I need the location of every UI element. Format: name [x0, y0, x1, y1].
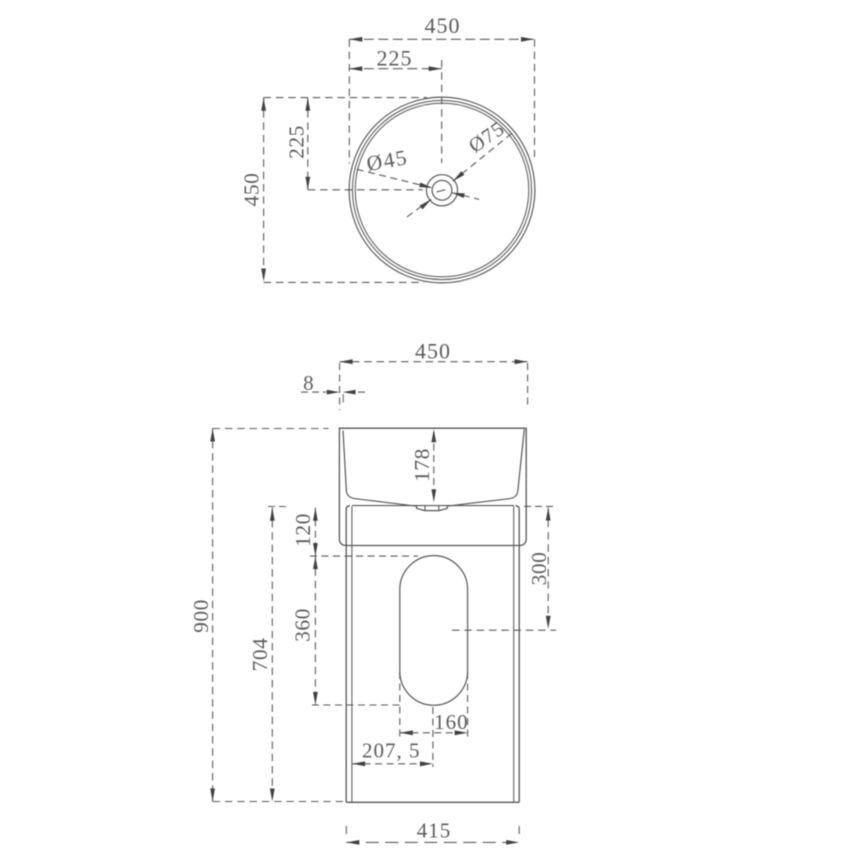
svg-text:704: 704: [248, 638, 272, 672]
svg-text:225: 225: [284, 125, 308, 159]
svg-text:120: 120: [291, 513, 315, 547]
svg-text:8: 8: [303, 371, 314, 395]
svg-text:Ø45: Ø45: [365, 145, 410, 176]
svg-text:225: 225: [377, 46, 413, 71]
svg-text:207, 5: 207, 5: [362, 739, 421, 763]
svg-text:178: 178: [410, 448, 434, 482]
svg-text:450: 450: [425, 13, 461, 38]
svg-text:415: 415: [417, 819, 452, 843]
svg-text:450: 450: [415, 339, 451, 364]
svg-text:450: 450: [239, 173, 263, 207]
svg-text:300: 300: [527, 552, 551, 586]
svg-text:360: 360: [291, 608, 315, 642]
svg-text:900: 900: [189, 599, 213, 633]
svg-text:160: 160: [434, 710, 469, 734]
